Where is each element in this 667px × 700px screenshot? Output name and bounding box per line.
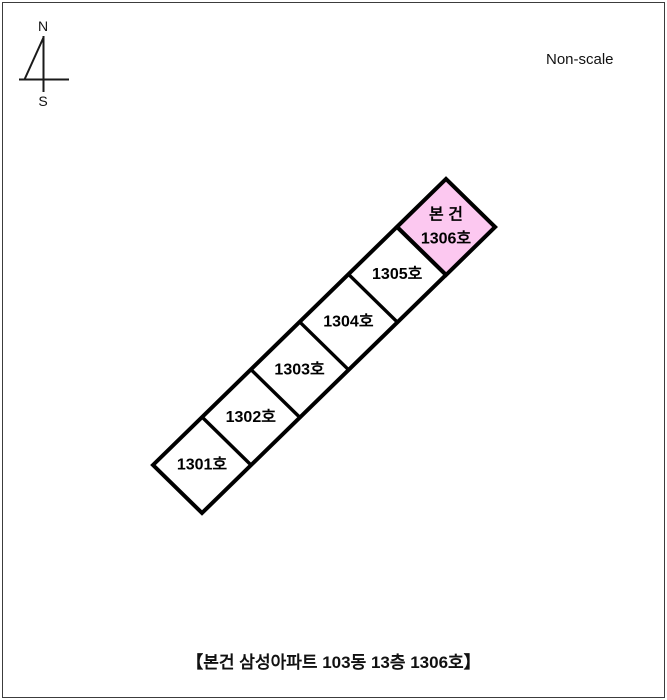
unit-label: 1303호 bbox=[274, 360, 325, 378]
subject-unit-prefix-label: 본 건 bbox=[429, 206, 463, 224]
unit-label: 1301호 bbox=[177, 456, 228, 474]
caption: 【본건 삼성아파트 103동 13층 1306호】 bbox=[0, 648, 667, 673]
unit-label: 1304호 bbox=[323, 313, 374, 331]
unit-label: 1302호 bbox=[226, 408, 277, 426]
unit-label: 1305호 bbox=[372, 265, 423, 283]
appraisal-location-diagram-page: N S Non-scale 1301호1302호1303호1304호1305호본… bbox=[0, 0, 667, 700]
floor-plan-diagram: 1301호1302호1303호1304호1305호본 건1306호 bbox=[0, 0, 667, 700]
unit-label: 1306호 bbox=[421, 230, 472, 248]
